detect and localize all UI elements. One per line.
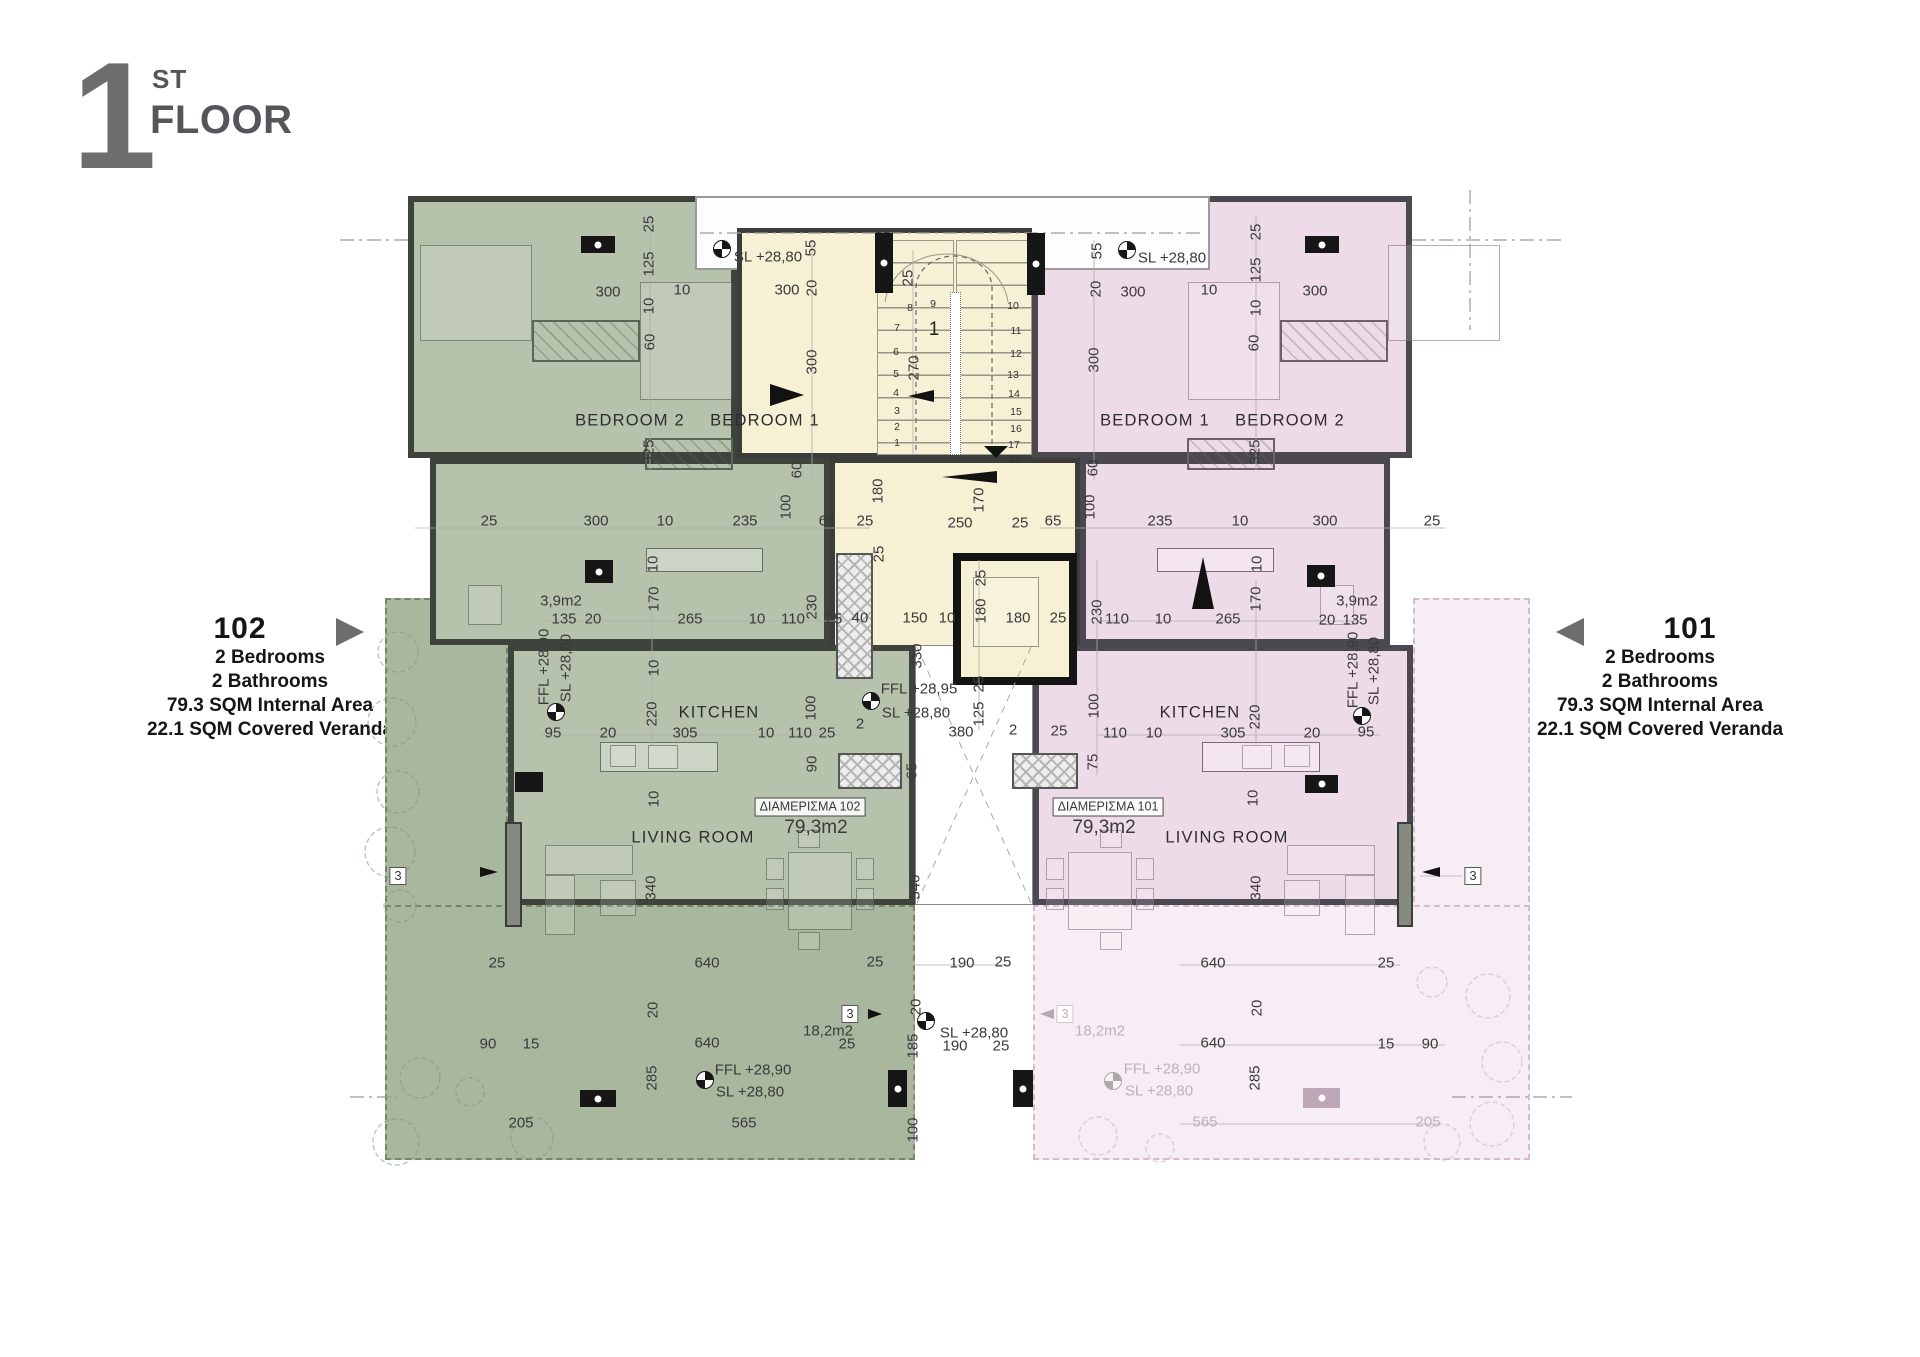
dim-label: 25 [1424,513,1441,530]
dim-label: 25 [871,546,888,563]
dim-label: 300 [804,349,821,374]
dim-label: 230 [804,594,821,619]
dim-label: 190 [949,955,974,972]
dim-label: 25 [973,570,990,587]
sofa [1345,875,1375,935]
dim-label: 79,3m2 [1072,817,1135,839]
direction-arrow-icon [868,1009,882,1019]
dim-label: 95 [1358,724,1375,741]
wall-column-marker [1305,775,1338,793]
apartment-101-bedrooms: 2 Bedrooms [1495,646,1825,670]
dim-label: 135 [551,611,576,628]
dim-label: 270 [906,355,923,380]
dim-label: 235 [732,513,757,530]
direction-arrow-icon [480,867,498,877]
dim-label: 10 [1249,556,1266,573]
chair [856,888,874,910]
dim-label: 60 [1246,335,1263,352]
dim-label: 300 [1120,284,1145,301]
bed [1188,282,1280,400]
dim-label: SL +28,80 [558,634,575,702]
dim-label: 565 [1192,1114,1217,1131]
dim-label: FFL +28,95 [881,681,958,698]
dim-label: 2 [894,421,900,433]
dim-label: 340 [643,875,660,900]
dim-label: 90 [804,756,821,773]
dining-table [788,852,852,930]
dim-label: 90 [1422,1036,1439,1053]
dim-label: 25 [900,270,917,287]
wall-column-marker [1027,233,1045,295]
appliance [1284,745,1310,767]
dim-label: 25 [481,513,498,530]
wall-column-marker [1013,1070,1033,1107]
direction-arrow-icon [908,390,934,402]
apartment-tag: ΔΙΑΜΕΡΙΣΜΑ 101 [1053,798,1164,817]
dim-label: 5 [893,368,899,380]
dim-label: 110 [1105,611,1129,628]
apartment-102-id: 102 [105,612,375,646]
floor-plan-page: 1 ST FLOOR 102 2 Bedrooms 2 Bathrooms 79… [0,0,1920,1357]
dim-label: 95 [545,725,562,742]
room-label: BEDROOM 1 [1100,412,1210,431]
direction-arrow-icon [1192,557,1214,609]
dim-label: SL +28,80 [1138,250,1206,267]
survey-point-icon [1353,707,1371,725]
direction-arrow-icon [984,446,1008,458]
dim-label: 190 [942,1038,967,1055]
wall-column-marker [580,1090,616,1107]
dim-label: 300 [1302,283,1327,300]
dim-label: 205 [1415,1114,1440,1131]
dim-label: 20 [804,280,821,297]
entry-steps-right [1012,753,1078,789]
dim-label: 640 [694,955,719,972]
dim-label: 2 [1009,722,1017,739]
survey-point-icon [713,240,731,258]
apartment-101-id: 101 [1555,612,1825,646]
apartment-tag: ΔΙΑΜΕΡΙΣΜΑ 102 [755,798,866,817]
dim-label: 25 [839,1036,856,1053]
dim-label: 10 [1201,282,1218,299]
dim-label: 6 [893,346,899,358]
chair [1136,888,1154,910]
survey-point-icon [862,692,880,710]
dim-label: 3,9m2 [540,593,582,610]
chair [1100,932,1122,950]
dim-label: 100 [778,494,795,519]
dim-label: 10 [641,298,658,315]
direction-arrow-icon [942,471,997,483]
dim-label: 25 [1051,723,1068,740]
dim-label: 180 [1005,610,1030,627]
dim-label: 55 [803,240,820,257]
dim-label: 25 [1378,955,1395,972]
dim-label: 15 [523,1036,540,1053]
wall-column-marker [585,560,613,583]
dim-label: SL +28,80 [716,1084,784,1101]
dim-label: SL +28,80 [1125,1083,1193,1100]
chair [766,888,784,910]
dim-label: 10 [758,725,775,742]
apartment-101-internal-area: 79.3 SQM Internal Area [1495,694,1825,718]
chair [798,932,820,950]
dim-label: 15 [1378,1036,1395,1053]
wc-fixture [468,585,502,625]
dim-label: 11 [1011,325,1022,337]
dim-label: 220 [644,701,661,726]
dim-label: 7 [894,322,900,334]
dim-label: 100 [905,1117,922,1142]
dim-label: 100 [803,695,820,720]
dim-label: 265 [677,611,702,628]
dim-label: 17 [1008,439,1020,451]
wall-column-marker [1303,1088,1340,1108]
dim-label: 10 [1248,300,1265,317]
chair [1046,858,1064,880]
dim-label: 325 [641,439,658,464]
dim-label: 10 [749,611,766,628]
dim-label: 150 [902,610,927,627]
wall-column-marker [1307,565,1335,587]
dim-label: FFL +28,90 [1124,1061,1201,1078]
dim-label: 3 [894,405,900,417]
dim-label: 205 [508,1115,533,1132]
dim-label: 300 [774,282,799,299]
dim-label: SL +28,80 [1366,637,1383,705]
dim-label: 300 [1312,513,1337,530]
dim-label: 25 [826,611,843,628]
dim-label: 10 [1146,725,1163,742]
dim-label: 25 [1050,610,1067,627]
dim-label: 75 [1085,754,1102,771]
dim-label: 640 [1200,955,1225,972]
apartment-101-info: 101 2 Bedrooms 2 Bathrooms 79.3 SQM Inte… [1495,612,1825,742]
dim-label: 305 [672,725,697,742]
dim-label: 10 [646,791,663,808]
sofa [545,845,633,875]
dim-label: 1 [894,437,900,449]
dim-label: 10 [939,610,956,627]
appliance [1242,745,1272,769]
dim-label: 65 [904,763,921,780]
floor-word: FLOOR [150,98,292,143]
stair-divider [950,292,961,455]
dim-label: 100 [1082,494,1099,519]
dim-label: 110 [781,611,805,628]
dim-label: 25 [857,513,874,530]
direction-arrow-icon [1422,867,1440,877]
dim-label: 3 [1056,1005,1073,1023]
dim-label: 10 [1007,300,1019,312]
dim-label: 20 [1319,612,1336,629]
dim-label: 10 [645,556,662,573]
dim-label: 380 [948,724,973,741]
direction-arrow-icon [1040,1009,1054,1019]
closet [645,438,733,470]
dim-label: 10 [1232,513,1249,530]
dim-label: 90 [480,1036,497,1053]
dim-label: 640 [1200,1035,1225,1052]
dim-label: 640 [694,1035,719,1052]
dim-label: 230 [1089,599,1106,624]
room-label: LIVING ROOM [631,829,754,848]
wall-column-marker [888,1070,907,1107]
dim-label: 4 [893,387,899,399]
dim-label: 235 [1147,513,1172,530]
dim-label: 25 [1012,515,1029,532]
dim-label: 16 [1010,423,1022,435]
dim-label: 325 [1247,439,1264,464]
dim-label: 8 [907,302,913,314]
dim-label: 20 [1088,281,1105,298]
chair [766,858,784,880]
dim-label: 265 [1215,611,1240,628]
dim-label: 110 [788,725,812,742]
dim-label: 60 [642,334,659,351]
survey-point-icon [917,1012,935,1030]
apartment-101-pointer-icon [1556,618,1584,646]
dim-label: 2 [856,716,864,733]
dim-label: 14 [1008,388,1020,400]
chair [1136,858,1154,880]
dim-label: 170 [1248,586,1265,611]
dim-label: 330 [909,643,926,668]
dim-label: 125 [641,251,658,276]
dim-label: 340 [1248,875,1265,900]
dim-label: 100 [1086,693,1103,718]
window-bar-left [505,822,522,927]
dim-label: 12 [1010,348,1022,360]
dim-label: 25 [971,676,988,693]
dim-label: FFL +28,90 [1345,632,1362,709]
dim-label: 300 [1086,347,1103,372]
dim-label: 3 [389,867,406,885]
dim-label: 285 [1247,1065,1264,1090]
appliance [648,745,678,769]
dim-label: 9 [930,298,936,310]
apartment-101-bathrooms: 2 Bathrooms [1495,670,1825,694]
dim-label: 55 [1089,243,1106,260]
survey-point-icon [1104,1072,1122,1090]
bed [1388,245,1500,341]
coffee-table [600,880,636,916]
dim-label: 20 [1304,725,1321,742]
dim-label: SL +28,80 [882,705,950,722]
floor-number: 1 [72,40,157,192]
dim-label: 220 [1247,704,1264,729]
apartment-102-pointer-icon [336,618,364,646]
dim-label: 20 [1249,1000,1266,1017]
dim-label: 20 [645,1002,662,1019]
dim-label: 25 [819,725,836,742]
dim-label: 25 [1248,224,1265,241]
entry-steps-left [838,753,902,789]
dim-label: 20 [600,725,617,742]
wall-column-marker [581,236,615,253]
dim-label: 300 [595,284,620,301]
dim-label: 25 [641,216,658,233]
kitchen-counter [646,548,763,572]
dim-label: 25 [993,1038,1010,1055]
dim-label: SL +28,80 [734,249,802,266]
sofa [545,875,575,935]
dim-label: 25 [867,954,884,971]
closet [532,320,640,362]
dim-label: 25 [489,955,506,972]
dim-label: 60 [1085,460,1102,477]
chair [1046,888,1064,910]
dim-label: 110 [1103,725,1127,742]
dim-label: 135 [1342,612,1367,629]
dim-label: 20 [585,611,602,628]
dim-label: FFL +28,90 [715,1062,792,1079]
dim-label: 25 [995,954,1012,971]
survey-point-icon [1118,241,1136,259]
dim-label: 10 [657,513,674,530]
room-label: BEDROOM 2 [575,412,685,431]
room-label: BEDROOM 2 [1235,412,1345,431]
dim-label: 3 [1464,867,1481,885]
coffee-table [1284,880,1320,916]
closet [1280,320,1388,362]
dim-label: 60 [789,462,806,479]
dim-label: 170 [971,487,988,512]
dim-label: 340 [907,874,924,899]
survey-point-icon [547,703,565,721]
sofa [1287,845,1375,875]
dim-label: 3 [841,1005,858,1023]
dim-label: 170 [646,586,663,611]
room-label: BEDROOM 1 [710,412,820,431]
dim-label: 3,9m2 [1336,593,1378,610]
wall-column-marker [515,772,543,792]
wall-column-marker [1305,236,1339,253]
dim-label: FFL +28,90 [536,629,553,706]
dim-label: 565 [731,1115,756,1132]
dim-label: 305 [1220,725,1245,742]
dim-label: 40 [852,610,869,627]
dim-label: 1 [929,319,940,341]
dim-label: 10 [674,282,691,299]
room-label: LIVING ROOM [1165,829,1288,848]
dim-label: 185 [905,1033,922,1058]
room-label: KITCHEN [679,704,760,723]
dim-label: 65 [819,513,836,530]
dim-label: 10 [646,660,663,677]
dim-label: 180 [870,478,887,503]
appliance [610,745,636,767]
dim-label: 250 [947,515,972,532]
dim-label: 125 [1248,257,1265,282]
window-bar-right [1397,822,1413,927]
direction-arrow-icon [770,384,804,406]
dim-label: 300 [583,513,608,530]
dining-table [1068,852,1132,930]
dim-label: 10 [1245,790,1262,807]
dim-label: 18 [1010,453,1022,465]
dim-label: 18,2m2 [1075,1023,1125,1040]
survey-point-icon [696,1071,714,1089]
dim-label: 65 [1045,513,1062,530]
dim-label: 79,3m2 [784,817,847,839]
dim-label: 285 [644,1065,661,1090]
apartment-101-veranda-area: 22.1 SQM Covered Veranda [1495,718,1825,742]
wall-column-marker [875,233,893,293]
dim-label: 10 [1155,611,1172,628]
floor-suffix: ST [152,64,187,95]
dim-label: 15 [1010,406,1022,418]
bed [420,245,532,341]
dim-label: 180 [973,598,990,623]
room-label: KITCHEN [1160,704,1241,723]
dim-label: 13 [1007,369,1019,381]
chair [856,858,874,880]
